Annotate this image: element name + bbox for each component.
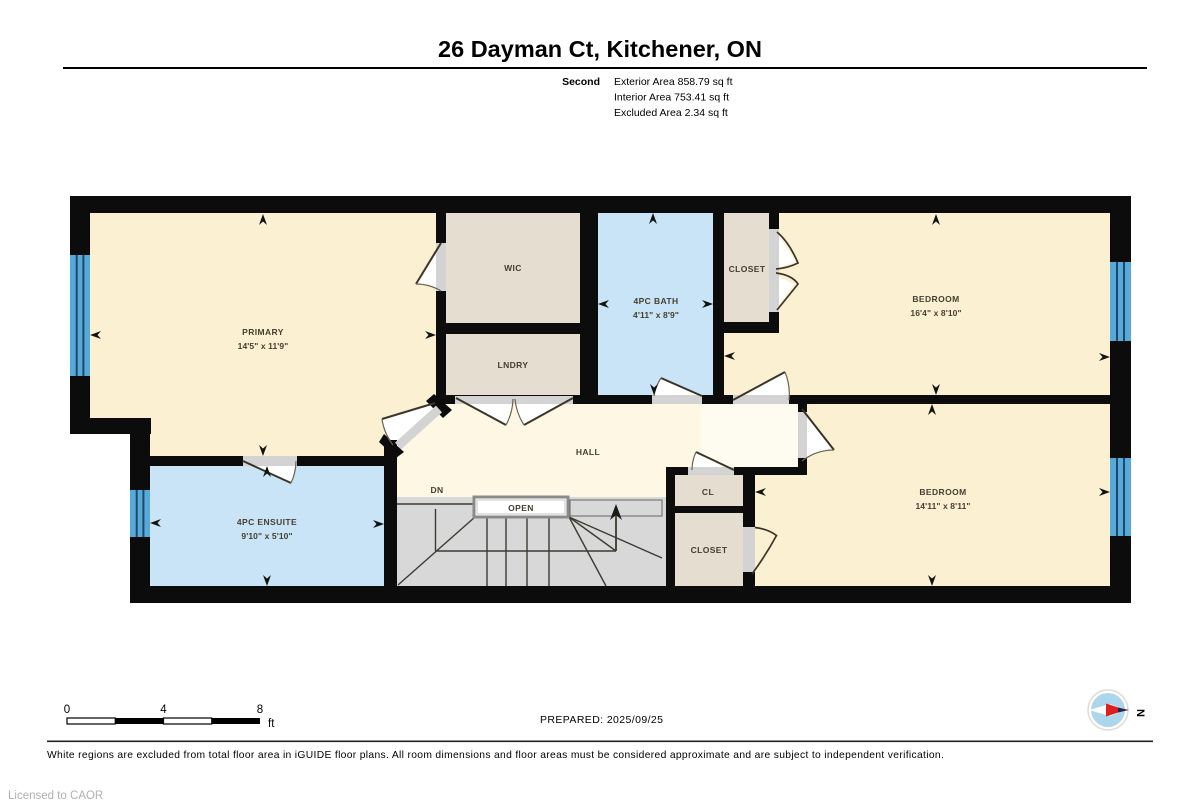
svg-text:Licensed to CAOR: Licensed to CAOR [8,790,103,802]
svg-text:14'5" x 11'9": 14'5" x 11'9" [238,341,289,351]
svg-text:CLOSET: CLOSET [729,264,766,274]
svg-text:Interior Area 753.41 sq ft: Interior Area 753.41 sq ft [614,92,729,104]
svg-text:N: N [1134,709,1146,717]
svg-text:PREPARED: 2025/09/25: PREPARED: 2025/09/25 [540,714,663,726]
svg-text:Second: Second [562,76,600,88]
svg-text:4: 4 [160,704,167,716]
svg-text:4PC ENSUITE: 4PC ENSUITE [237,517,297,527]
svg-text:0: 0 [64,704,70,716]
svg-text:CL: CL [702,487,714,497]
svg-text:BEDROOM: BEDROOM [912,294,959,304]
svg-text:14'11" x 8'11": 14'11" x 8'11" [915,501,970,511]
svg-text:9'10" x 5'10": 9'10" x 5'10" [241,531,292,541]
svg-text:CLOSET: CLOSET [691,545,728,555]
svg-text:Exterior Area 858.79 sq ft: Exterior Area 858.79 sq ft [614,76,733,88]
svg-text:White regions are excluded fro: White regions are excluded from total fl… [47,750,944,761]
svg-text:Excluded Area 2.34 sq ft: Excluded Area 2.34 sq ft [614,107,728,119]
svg-text:DN: DN [430,485,443,495]
svg-text:OPEN: OPEN [508,503,534,513]
svg-text:8: 8 [257,704,263,716]
svg-text:16'4" x 8'10": 16'4" x 8'10" [910,308,961,318]
svg-text:4'11" x 8'9": 4'11" x 8'9" [633,310,679,320]
svg-text:BEDROOM: BEDROOM [919,487,966,497]
svg-text:LNDRY: LNDRY [498,360,529,370]
svg-text:HALL: HALL [576,447,600,457]
svg-text:ft: ft [268,718,275,730]
svg-text:4PC BATH: 4PC BATH [633,296,678,306]
svg-text:26 Dayman Ct, Kitchener, ON: 26 Dayman Ct, Kitchener, ON [438,36,762,62]
svg-text:WIC: WIC [504,263,522,273]
svg-text:PRIMARY: PRIMARY [242,327,284,337]
